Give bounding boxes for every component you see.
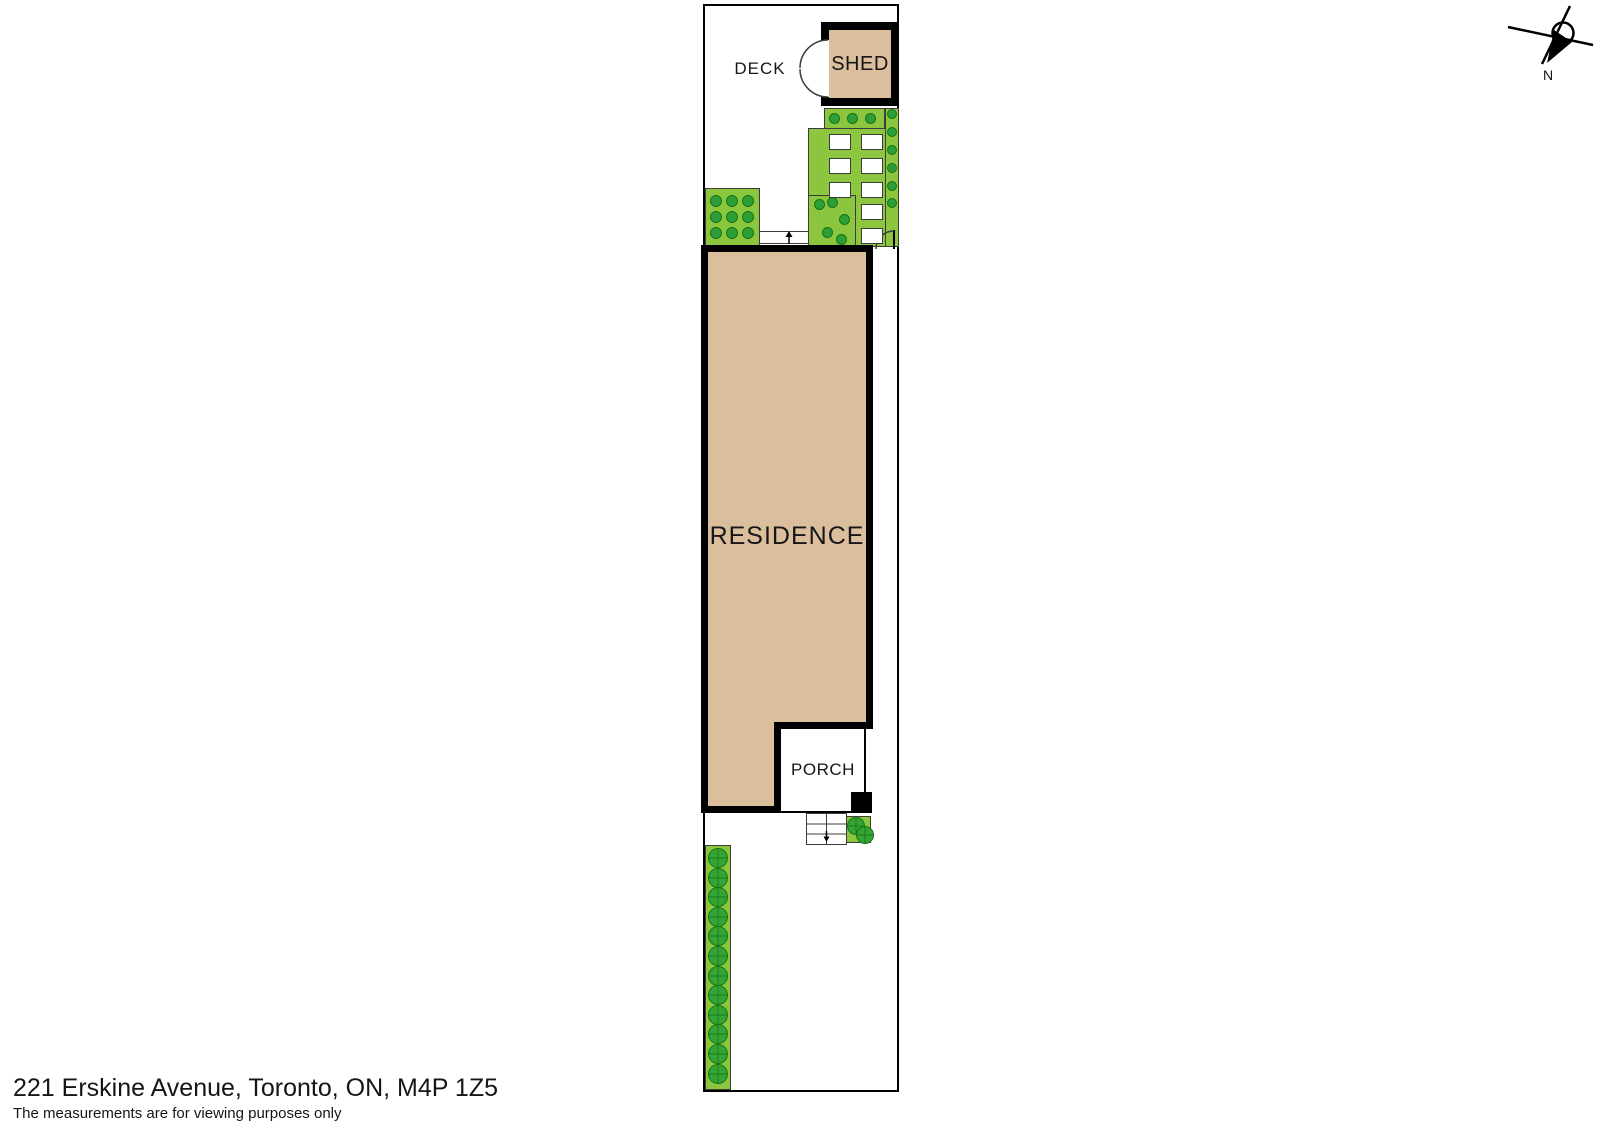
shrub-dot	[887, 181, 897, 191]
measurement-disclaimer: The measurements are for viewing purpose…	[13, 1105, 342, 1122]
porch-label: PORCH	[781, 760, 865, 780]
shrub-dot	[742, 227, 754, 239]
tree-icon	[708, 1064, 728, 1084]
shrub-dot	[836, 234, 847, 245]
shrub-dot	[887, 109, 897, 119]
tree-icon	[708, 907, 728, 927]
tree-icon	[856, 826, 874, 844]
site-plan-page: DECK SHED RESIDENCE PORCH	[0, 0, 1600, 1131]
tree-icon	[708, 868, 728, 888]
shrub-dot	[887, 163, 897, 173]
compass-north-label: N	[1543, 67, 1553, 83]
garden-right-strip	[885, 108, 899, 208]
tree-icon	[708, 966, 728, 986]
paver-stone	[829, 158, 851, 174]
porch-steps	[806, 813, 847, 845]
paver-stone	[861, 182, 883, 198]
walkway-up-arrow-icon	[782, 230, 796, 246]
tree-icon	[708, 1005, 728, 1025]
shrub-dot	[887, 198, 897, 208]
residence-floor-lower	[708, 722, 774, 806]
paver-stone	[829, 134, 851, 150]
shrub-dot	[829, 113, 840, 124]
tree-icon	[708, 848, 728, 868]
paver-stone	[861, 228, 883, 244]
porch-corner-post	[851, 792, 872, 813]
shrub-dot	[887, 145, 897, 155]
property-address: 221 Erskine Avenue, Toronto, ON, M4P 1Z5	[13, 1074, 498, 1103]
shrub-dot	[887, 127, 897, 137]
paver-stone	[829, 182, 851, 198]
shrub-dot	[726, 227, 738, 239]
shrub-dot	[814, 199, 825, 210]
paver-stone	[861, 204, 883, 220]
shrub-dot	[847, 113, 858, 124]
shrub-dot	[742, 211, 754, 223]
residence-label: RESIDENCE	[708, 522, 866, 551]
shrub-dot	[726, 195, 738, 207]
paver-stone	[861, 134, 883, 150]
compass-north-icon: N	[1480, 0, 1600, 90]
shrub-dot	[742, 195, 754, 207]
tree-icon	[708, 946, 728, 966]
shrub-dot	[827, 197, 838, 208]
residence-floor	[708, 252, 866, 722]
shrub-dot	[710, 195, 722, 207]
shrub-dot	[726, 211, 738, 223]
shed-double-door-icon	[770, 20, 840, 110]
shrub-dot	[710, 211, 722, 223]
shrub-dot	[710, 227, 722, 239]
tree-icon	[708, 1044, 728, 1064]
shrub-dot	[822, 227, 833, 238]
shrub-dot	[839, 214, 850, 225]
shrub-dot	[865, 113, 876, 124]
paver-stone	[861, 158, 883, 174]
